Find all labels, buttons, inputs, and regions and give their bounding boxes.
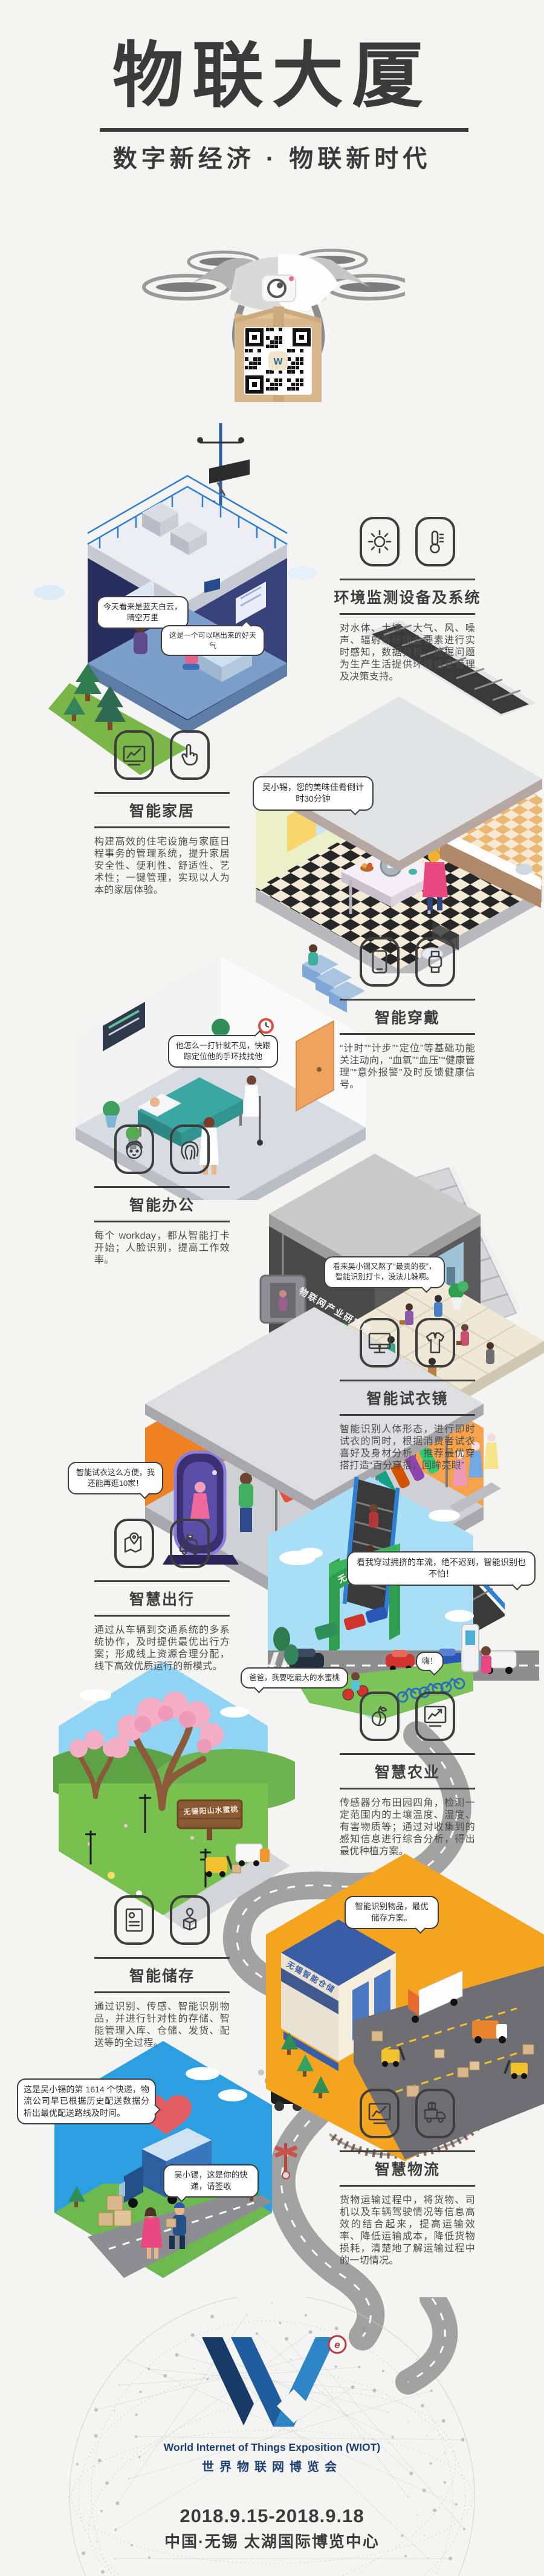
divider [94, 826, 230, 828]
home-icon-row [114, 730, 210, 780]
divider [94, 792, 230, 794]
section-desc: 货物运输过程中，将货物、司机以及车辆驾驶情况等信息高效的结合起来，提高运输效率、… [340, 2195, 475, 2267]
mirror-icon-row [360, 1318, 455, 1367]
footer-cn-name: 世界物联网博览会 [0, 2457, 544, 2474]
peach-icon [360, 1692, 400, 1741]
divider [94, 1957, 230, 1959]
section-agri-text: 智慧农业 传感器分布田园四角，检测一定范围内的土壤温度、湿度、有害物质等；通过对… [340, 1692, 475, 1858]
section-wear-text: 智能穿戴 “计时”“计步”“定位”等基础功能关注动向，“血氧”“血压”“健康管理… [340, 937, 475, 1091]
speech-bubble-wear: 他怎么一打针就不见，快跟踪定位他的手环找找他 [168, 1035, 278, 1068]
speech-bubble-env-2: 这是一个可以唱出来的好天气 [161, 625, 265, 656]
road-tail [408, 2299, 445, 2382]
speech-bubble-mobility-1: 看我穿过拥挤的车流，绝不迟到，智能识别也不怕！ [347, 1551, 536, 1586]
section-desc: 对水体、土壤、大气、风、噪声、辐射等环境全要素进行实时感知，数据分析，挖掘问题为… [340, 623, 475, 683]
section-desc: “计时”“计步”“定位”等基础功能关注动向，“血氧”“血压”“健康管理”“意外报… [340, 1043, 475, 1091]
divider [94, 1991, 230, 1993]
section-title: 智能穿戴 [375, 1006, 440, 1028]
tv-chart-icon [114, 730, 154, 780]
divider [340, 2150, 475, 2152]
taxi-icon [170, 1519, 210, 1568]
section-title: 智慧物流 [375, 2158, 440, 2179]
divider [340, 999, 475, 1001]
divider [340, 1753, 475, 1755]
section-env-text: 环境监测设备及系统 对水体、土壤、大气、风、噪声、辐射等环境全要素进行实时感知，… [340, 517, 475, 683]
storage-icon-row [114, 1895, 210, 1945]
section-logistics-text: 智慧物流 货物运输过程中，将货物、司机以及车辆驾驶情况等信息高效的结合起来，提高… [340, 2089, 475, 2267]
drone-illustration: W [139, 227, 405, 420]
box-pin-icon [170, 1895, 210, 1945]
env-icon-row [360, 517, 455, 566]
divider [340, 1788, 475, 1789]
section-title: 智能储存 [129, 1964, 195, 1986]
section-title: 智能家居 [129, 799, 195, 821]
fingerprint-icon [170, 1124, 210, 1174]
section-office-text: 智能办公 每个 workday，都从智能打卡开始；人脸识别，提高工作效率。 [94, 1124, 230, 1267]
speech-bubble-mobility-2: 嗨！ [416, 1652, 444, 1671]
divider [340, 2185, 475, 2187]
svg-text:e: e [334, 2339, 340, 2351]
speech-bubble-logistics-1: 这是吴小锡的第 1614 个快递，物流公司早已根据历史配送数据分析出最优配送路线… [17, 2078, 156, 2124]
divider [340, 1414, 475, 1416]
speech-bubble-env-1: 今天看来是蓝天白云，晴空万里 [97, 596, 189, 629]
section-title: 智能试衣镜 [366, 1387, 448, 1409]
divider [340, 1033, 475, 1035]
touch-icon [170, 730, 210, 780]
divider [94, 1221, 230, 1222]
section-mirror-text: 智能试衣镜 智能识别人体形态，进行即时试衣的同时，根据消费者试衣喜好及身材分析，… [340, 1318, 475, 1472]
section-title: 智能办公 [129, 1193, 195, 1215]
footer-venue: 中国·无锡 太湖国际博览中心 [0, 2529, 544, 2552]
thermometer-icon [415, 517, 455, 566]
wear-icon-row [360, 937, 455, 987]
page-title: 物联大厦 [0, 37, 544, 116]
section-desc: 通过从车辆到交通系统的多系统协作，及时提供最优出行方案；形成线上资源合理分配，线… [94, 1624, 230, 1673]
section-title: 智慧出行 [129, 1588, 195, 1609]
sun-icon [360, 517, 400, 566]
section-desc: 传感器分布田园四角，检测一定范围内的土壤温度、湿度、有害物质等；通过对收集到的感… [340, 1797, 475, 1858]
logo-stroke-3 [273, 2337, 336, 2427]
divider [340, 579, 475, 580]
section-desc: 智能识别人体形态，进行即时试衣的同时，根据消费者试衣喜好及身材分析，推荐最优穿搭… [340, 1424, 475, 1472]
section-title: 智慧农业 [375, 1760, 440, 1782]
divider [340, 1380, 475, 1381]
speech-bubble-storage: 智能识别物品，最优储存方案。 [345, 1896, 439, 1929]
section-mobility-text: 智慧出行 通过从车辆到交通系统的多系统协作，及时提供最优出行方案；形成线上资源合… [94, 1519, 230, 1673]
map-pin-icon [114, 1519, 154, 1568]
section-desc: 构建高效的住宅设施与家庭日程事务的管理系统，提升家居安全性、便利性、舒适性、艺术… [94, 836, 230, 897]
speech-bubble-mobility-3: 爸爸，我要吃最大的水蜜桃 [241, 1667, 348, 1689]
parcel-box: W [235, 307, 322, 402]
section-desc: 通过识别、传感、智能识别物品，并进行针对性的存储、智能管理入库、仓储、发货、配送… [94, 2001, 230, 2049]
office-icon-row [114, 1124, 210, 1174]
speech-bubble-office: 看来吴小锡又熬了“最贵的夜”，智能识别打卡，没法儿躲啊。 [324, 1256, 445, 1288]
speech-bubble-mirror: 智能试衣这么方便，我还能再逛10家！ [68, 1462, 163, 1494]
mobility-icon-row [114, 1519, 210, 1568]
line-chart-icon [360, 2089, 400, 2138]
shirt-icon [415, 1318, 455, 1367]
section-home-text: 智能家居 构建高效的住宅设施与家庭日程事务的管理系统，提升家居安全性、便利性、舒… [94, 730, 230, 897]
section-storage-text: 智能储存 通过识别、传感、智能识别物品，并进行针对性的存储、智能管理入库、仓储、… [94, 1895, 230, 2049]
divider [94, 1615, 230, 1617]
face-icon [114, 1124, 154, 1174]
infographic-poster: 物联大厦 数字新经济 · 物联新时代 [0, 0, 544, 2576]
divider [94, 1186, 230, 1188]
page-subtitle: 数字新经济 · 物联新时代 [0, 139, 544, 174]
smartphone-icon [360, 937, 400, 987]
agri-icon-row [360, 1692, 455, 1741]
smartwatch-icon [415, 937, 455, 987]
title-divider [100, 128, 468, 132]
line-chart-icon [415, 1692, 455, 1741]
gift-truck-icon [415, 2089, 455, 2138]
divider [340, 613, 475, 615]
wiot-logo: e [193, 2326, 351, 2438]
section-desc: 每个 workday，都从智能打卡开始；人脸识别，提高工作效率。 [94, 1230, 230, 1267]
footer-dates: 2018.9.15-2018.9.18 [0, 2505, 544, 2527]
divider [94, 1580, 230, 1582]
footer-en-name: World Internet of Things Exposition (WIO… [0, 2441, 544, 2454]
qr-logo: W [273, 357, 283, 367]
speech-bubble-logistics-2: 吴小锡，这是你的快递，请签收 [163, 2164, 259, 2198]
logistics-icon-row [360, 2089, 455, 2138]
id-file-icon [114, 1895, 154, 1945]
speech-bubble-home: 吴小锡，您的美味佳肴倒计时30分钟 [253, 776, 374, 811]
section-title: 环境监测设备及系统 [334, 586, 481, 608]
